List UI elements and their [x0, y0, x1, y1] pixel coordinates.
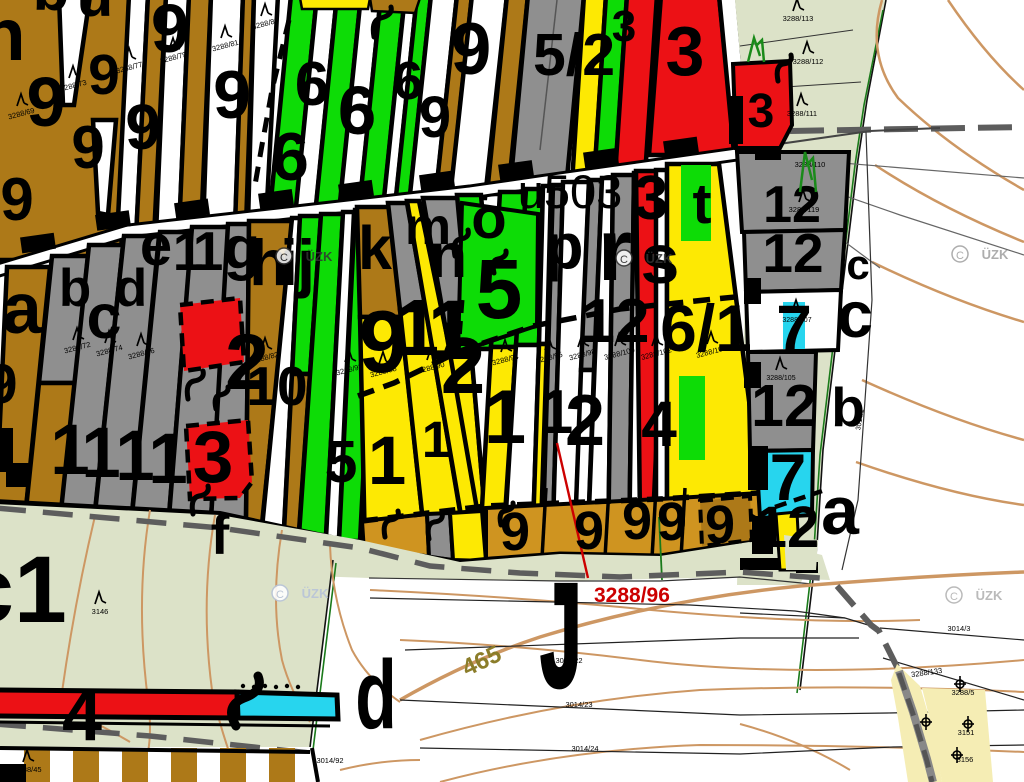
svg-text:6: 6: [295, 50, 329, 119]
svg-text:3288/111: 3288/111: [787, 109, 817, 118]
svg-text:7: 7: [776, 292, 812, 364]
svg-text:J: J: [541, 556, 581, 717]
svg-text:3288/96: 3288/96: [594, 584, 670, 607]
svg-text:9: 9: [88, 43, 120, 107]
svg-text:3288/112: 3288/112: [793, 57, 824, 66]
svg-text:f: f: [211, 503, 230, 566]
svg-text:9: 9: [419, 85, 451, 150]
svg-text:3: 3: [612, 2, 636, 51]
svg-text:1: 1: [422, 411, 450, 468]
svg-text:ÜZK: ÜZK: [976, 588, 1003, 603]
svg-text:12: 12: [755, 495, 820, 560]
svg-text:k: k: [358, 214, 392, 282]
svg-text:3288/119: 3288/119: [789, 205, 820, 214]
svg-text:c1: c1: [0, 537, 67, 643]
svg-text:3: 3: [666, 12, 705, 90]
svg-text:9: 9: [213, 57, 251, 133]
svg-text:1: 1: [148, 420, 188, 499]
svg-text:9: 9: [71, 114, 104, 181]
svg-text:p: p: [544, 210, 583, 282]
svg-text:1: 1: [484, 375, 526, 460]
svg-text:C: C: [280, 252, 288, 264]
svg-text:e: e: [140, 213, 172, 278]
svg-text:d: d: [355, 640, 396, 749]
svg-text:9: 9: [500, 502, 530, 562]
svg-text:C: C: [620, 254, 628, 266]
svg-text:6: 6: [271, 119, 309, 195]
svg-text:9: 9: [27, 63, 66, 141]
svg-text:9: 9: [574, 501, 604, 561]
svg-text:1: 1: [368, 422, 406, 499]
svg-text:t: t: [693, 172, 712, 236]
svg-text:2: 2: [441, 321, 486, 410]
svg-text:u: u: [77, 0, 114, 29]
svg-text:r: r: [598, 200, 632, 299]
svg-text:3014/3: 3014/3: [948, 624, 971, 633]
svg-text:9: 9: [622, 491, 652, 551]
svg-text:9: 9: [125, 91, 161, 163]
svg-text:3288/107: 3288/107: [782, 317, 811, 324]
svg-text:3014/92: 3014/92: [316, 756, 343, 765]
svg-text:1: 1: [193, 220, 224, 282]
svg-text:3288/105: 3288/105: [766, 375, 795, 382]
svg-text:c: c: [846, 241, 869, 288]
svg-text:n: n: [0, 0, 26, 76]
svg-text:6: 6: [338, 72, 376, 149]
svg-text:C: C: [956, 250, 964, 262]
svg-text:C: C: [276, 589, 284, 601]
svg-text:3014/22: 3014/22: [555, 656, 582, 665]
svg-text:a: a: [2, 270, 42, 349]
svg-text:3014/24: 3014/24: [571, 744, 598, 753]
svg-text:12: 12: [751, 373, 817, 439]
svg-text:4: 4: [62, 676, 102, 756]
svg-text:a: a: [821, 473, 860, 549]
svg-text:5: 5: [325, 429, 358, 495]
svg-text:ÜZK: ÜZK: [982, 247, 1009, 262]
svg-text:2: 2: [565, 381, 605, 461]
svg-text:9: 9: [0, 352, 18, 415]
svg-text:3: 3: [634, 164, 668, 233]
svg-text:b: b: [33, 0, 70, 23]
svg-text:9: 9: [0, 166, 33, 233]
svg-text:3: 3: [748, 85, 775, 138]
svg-text:3014/23: 3014/23: [565, 700, 592, 709]
svg-text:ÜZK: ÜZK: [306, 249, 333, 264]
svg-text:3151: 3151: [958, 728, 975, 737]
svg-text:9: 9: [657, 492, 687, 552]
svg-text:3288/45: 3288/45: [14, 765, 41, 774]
svg-text:3156: 3156: [957, 755, 974, 764]
svg-text:c: c: [837, 278, 873, 351]
svg-text:ÜZK: ÜZK: [302, 586, 329, 601]
svg-text:3146: 3146: [92, 607, 109, 616]
svg-text:C: C: [950, 591, 958, 603]
svg-text:4: 4: [641, 388, 677, 460]
svg-text:n: n: [429, 221, 467, 291]
svg-text:9: 9: [705, 495, 735, 555]
svg-text:3288/113: 3288/113: [783, 14, 814, 23]
svg-text:12: 12: [762, 222, 823, 284]
svg-text:3288/5: 3288/5: [952, 688, 975, 697]
svg-text:9: 9: [451, 9, 492, 90]
svg-text:3: 3: [193, 417, 234, 498]
svg-text:ÜZK: ÜZK: [646, 251, 673, 266]
svg-text:5/2: 5/2: [533, 22, 615, 88]
